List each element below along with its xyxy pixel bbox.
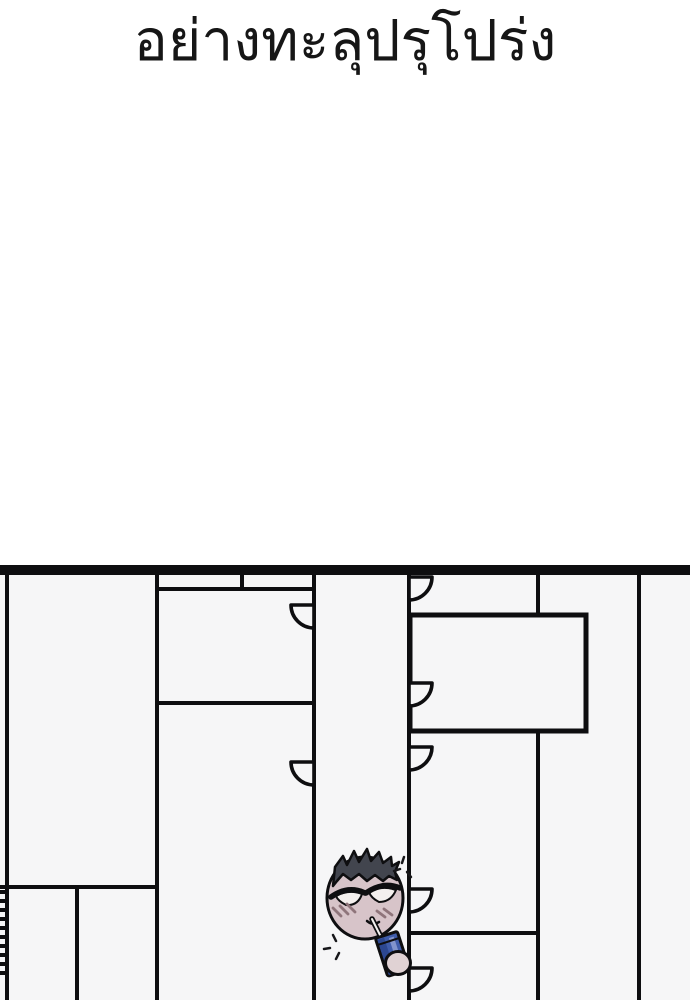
- wall-top-border: [0, 565, 690, 575]
- open-locker-door: [410, 615, 586, 731]
- page-title: อย่างทะลุปรุโปร่ง: [0, 0, 690, 77]
- comic-page: อย่างทะลุปรุโปร่ง: [0, 0, 690, 1000]
- character-hand: [386, 952, 411, 975]
- locker-illustration: [0, 560, 690, 1000]
